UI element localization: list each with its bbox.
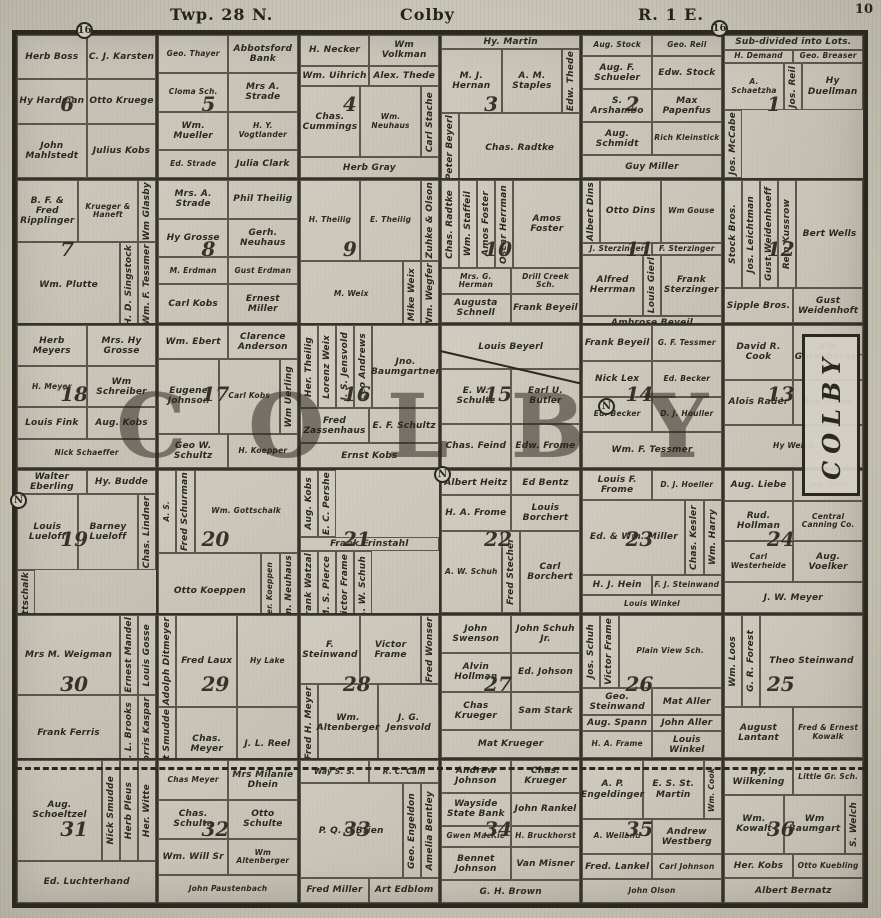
parcel-owner-label: A. P. Engeldinger [581, 779, 644, 799]
parcel-owner-label: Ed. Strade [170, 160, 216, 168]
parcel-owner-label: H. A. Frame [592, 740, 643, 748]
parcel: Nick Lex [582, 361, 652, 397]
parcel: Fred. Lankel [582, 854, 652, 879]
parcel: Nick Smudde [102, 760, 120, 861]
parcel-owner-label: Wm. Harry [708, 509, 718, 565]
parcel: Wm. Loos [724, 615, 742, 707]
parcel-owner-label: Wm. Kowalt [726, 814, 783, 834]
parcel-owner-label: Cloma Sch. [169, 88, 218, 96]
section-23: Louis F. FromeD. J. HoellerEd. & Wm. Mil… [581, 469, 722, 614]
parcel: Carl Johnson [652, 854, 722, 879]
parcel-group: Hy. WilkeningLittle Gr. Sch.Wm. KowaltWm… [724, 760, 863, 903]
parcel: Max Papenfus [652, 89, 722, 122]
parcel-owner-label: Frank Beyeil [513, 303, 578, 313]
parcel: Wayside State Bank [441, 793, 511, 826]
parcel: Fred Miller [300, 878, 370, 903]
parcel-owner-label: Aug. Spann [587, 718, 647, 728]
section-22: Albert HeitzEd BentzH. A. FromeLouis Bor… [440, 469, 581, 614]
parcel-owner-label: Fred H. Meyer [304, 686, 314, 759]
parcel: Oscar Herrman [495, 180, 513, 268]
parcel: Ed. Luchterhand [17, 861, 156, 903]
parcel-owner-label: Frank Sterzinger [663, 275, 720, 295]
parcel-owner-label: G. H. Brown [479, 887, 541, 897]
section-16: Her. TheiligLorenz WeixJ. S. JensvoldLeo… [299, 324, 440, 469]
parcel-group: Mrs. A. StradePhil TheiligHy GrosseGerh.… [158, 180, 297, 323]
parcel-owner-label: Herb Boss [25, 52, 78, 62]
parcel: H. Theilig [300, 180, 361, 261]
parcel: Julia Clark [228, 150, 298, 178]
parcel: Hy. Budde [87, 470, 157, 494]
parcel-owner-label: Ernst Kobs [341, 451, 397, 461]
parcel-owner-label: Aug. F. Schueler [584, 63, 650, 83]
parcel-owner-label: Otto Kruege [89, 96, 153, 106]
parcel: Ambrose Beyeil [582, 316, 721, 324]
highway-16-marker-icon: 16 [711, 20, 728, 37]
section-20: A. S.Fred SchurmanWm. GottschalkOtto Koe… [157, 469, 298, 614]
parcel: Louis Gosse [138, 615, 156, 695]
parcel-owner-label: Gust Erdman [234, 267, 291, 275]
parcel-owner-label: Clarence Anderson [230, 332, 296, 352]
parcel: Her. Witte [138, 760, 156, 861]
parcel-owner-label: Mrs. Hy Grosse [89, 336, 155, 356]
parcel-owner-label: Geo. Breaser [800, 52, 857, 60]
parcel: Hy Hardman [17, 79, 87, 123]
parcel: Alex. Thede [369, 66, 439, 87]
parcel: Louis Winkel [582, 595, 721, 613]
parcel: Chas. Radtke [459, 113, 580, 179]
parcel-group: Albert DinsOtto DinsWm GouseJ. Sterzinge… [582, 180, 721, 323]
parcel-owner-label: Augusta Schnell [443, 298, 509, 318]
parcel: Fred & Ernest Kowalk [793, 707, 863, 758]
parcel: John Aller [652, 715, 722, 732]
parcel: Zuhke & Olson [421, 180, 439, 261]
parcel-owner-label: H. A. Frome [445, 508, 506, 518]
parcel: John Olson [582, 879, 721, 902]
parcel: Augusta Schnell [441, 294, 511, 323]
colby-city-block: COLBY [802, 334, 860, 496]
parcel-group: Aug. StockGeo. ReilAug. F. SchuelerEdw. … [582, 35, 721, 178]
section-6: Herb BossC. J. KarstenHy HardmanOtto Kru… [16, 34, 157, 179]
parcel-owner-label: G. R. Forest [746, 630, 756, 692]
parcel: Frank Watzal [300, 551, 318, 614]
parcel-owner-label: Her. Witte [142, 784, 152, 837]
station-marker-icon: N [598, 398, 615, 415]
parcel-owner-label: Chas Meyer [168, 776, 219, 784]
parcel-owner-label: John Rankel [515, 804, 577, 814]
parcel: Aug. Kobs [300, 470, 318, 537]
parcel: Wm Baumgart [784, 795, 845, 854]
parcel: Herb Meyers [17, 325, 87, 366]
parcel: Wm. Ebert [158, 325, 228, 359]
parcel: Wm. F. Tessmer [138, 242, 156, 324]
parcel-owner-label: Sub-divided into Lots. [735, 37, 851, 47]
parcel-owner-label: Wm. Altenberger [317, 713, 380, 733]
parcel: Hy Duellman [802, 63, 863, 110]
parcel: John Mahlstedt [17, 124, 87, 178]
parcel: Louis Beyerl [441, 325, 580, 369]
parcel: Chas Meyer [158, 760, 228, 800]
parcel: Ed. & Wm. Miller [582, 500, 685, 575]
parcel: Geo. Engeldon [403, 783, 421, 877]
parcel: H. Demand [724, 50, 794, 63]
parcel-owner-label: Adolph Ditmeyer [162, 617, 172, 705]
parcel: Victor Frame [336, 551, 354, 614]
section-30: Mrs M. WeigmanErnest MandelLouis GosseFr… [16, 614, 157, 759]
parcel-owner-label: Drill Creek Sch. [513, 273, 579, 290]
parcel: Phil Theilig [228, 180, 298, 219]
parcel-group: Her. TheiligLorenz WeixJ. S. JensvoldLeo… [300, 325, 439, 468]
parcel: Hy. Martin [441, 35, 580, 49]
parcel-owner-label: Frank Ferris [37, 728, 99, 738]
parcel-owner-label: F. J. Steinwand [654, 581, 719, 589]
parcel-owner-label: Chas. Kesler [689, 505, 699, 570]
county-dashed-line [16, 767, 864, 770]
parcel-owner-label: Edw. Frome [515, 441, 575, 451]
parcel-owner-label: Geo W. Schultz [160, 441, 226, 461]
section-32: Chas MeyerMrs Milanie DheinChas. Schulte… [157, 759, 298, 904]
parcel-owner-label: Nick Schaeffer [54, 449, 118, 457]
parcel: F. Sterzinger [652, 243, 722, 255]
section-25: Wm. LoosG. R. ForestTheo SteinwandAugust… [723, 614, 864, 759]
section-7: B. F. & Fred RipplingerKrueger & HaneftW… [16, 179, 157, 324]
parcel-owner-label: Albert Bernatz [755, 886, 832, 896]
parcel-owner-label: David R. Cook [726, 342, 792, 362]
parcel: Wm. Wegfer [421, 261, 439, 324]
parcel-owner-label: Mrs. A. Strade [160, 189, 226, 209]
parcel-owner-label: Rud. Hollman [726, 511, 792, 531]
parcel: Amelia Bentley [421, 783, 439, 877]
parcel-owner-label: Otto Koeppen [174, 586, 246, 596]
parcel-owner-label: H. Necker [309, 45, 360, 55]
parcel: Carl Kobs [219, 359, 280, 434]
parcel-owner-label: Mat Krueger [478, 739, 544, 749]
parcel-owner-label: Louis Lueloff [19, 522, 76, 542]
parcel-owner-label: Her. Koeppen [266, 562, 274, 614]
section-19: Walter EberlingHy. BuddeLouis LueloffBar… [16, 469, 157, 614]
parcel: E. C. Pershe [318, 470, 336, 537]
parcel-owner-label: Peter Beyerl [445, 115, 455, 179]
parcel-owner-label: Zuhke & Olson [425, 182, 435, 259]
section-12: Stock Bros.Jos. LeichtmanGust Weidenhoef… [723, 179, 864, 324]
parcel: Aug. Schoeltzel [17, 760, 102, 861]
section-29: Adolph DitmeyerFred LauxHy LakeRobt Smud… [157, 614, 298, 759]
parcel: Frank Beyeil [582, 325, 652, 361]
parcel: G. R. Forest [742, 615, 760, 707]
section-27: John SwensonJohn Schuh Jr.Alvin HollmanE… [440, 614, 581, 759]
parcel: Fred Stecher [502, 531, 520, 613]
parcel-owner-label: Little Gr. Sch. [798, 773, 858, 781]
parcel-owner-label: J. W. Meyer [764, 593, 823, 603]
parcel-owner-label: Wm Baumgart [786, 814, 843, 834]
parcel: John Rankel [511, 793, 581, 826]
parcel: Louis Winkel [652, 731, 722, 758]
parcel: Central Canning Co. [793, 501, 863, 542]
parcel: Wm. Plutte [17, 242, 120, 324]
parcel: H. A. Frome [441, 495, 511, 530]
parcel-owner-label: F. Steinwand [302, 640, 359, 660]
township-label: Twp. 28 N. [170, 5, 273, 24]
parcel: Otto Kuebling [793, 854, 863, 879]
parcel-owner-label: Wm. Gottschalk [21, 572, 31, 614]
parcel: Andrew Westberg [652, 819, 722, 854]
parcel-owner-label: Wm. Neuhaus [362, 113, 419, 130]
parcel: Victor Frame [360, 615, 421, 684]
parcel-owner-label: Ernest Miller [230, 294, 296, 314]
parcel: Fred Schurman [176, 470, 194, 553]
parcel: A. Weiland [582, 819, 652, 854]
section-15: Louis BeyerlE. W. SchultzEarl U. ButlerC… [440, 324, 581, 469]
parcel-owner-label: Guy Miller [625, 162, 679, 172]
parcel-owner-label: A. M. Staples [504, 71, 561, 91]
parcel-owner-label: John Olson [628, 887, 675, 895]
parcel-owner-label: Louis Beyerl [478, 342, 543, 352]
parcel: Herb Pleus [120, 760, 138, 861]
parcel: A. S. [158, 470, 176, 553]
section-9: H. TheiligE. TheiligZuhke & OlsonM. Weix… [299, 179, 440, 324]
parcel-group: Louis BeyerlE. W. SchultzEarl U. ButlerC… [441, 325, 580, 468]
parcel: H. J. Hein [582, 575, 652, 595]
parcel: Fred Wonser [421, 615, 439, 684]
parcel: H. Koepper [228, 434, 298, 468]
parcel-owner-label: E. S. St. Martin [645, 779, 702, 799]
parcel-owner-label: J. G. Jensvold [380, 713, 437, 733]
parcel: Peter Beyerl [441, 113, 459, 179]
parcel-owner-label: Abbotsford Bank [230, 44, 296, 64]
parcel-owner-label: Wm. F. Tessmer [142, 244, 152, 324]
parcel: Jos. Reil [784, 63, 802, 110]
parcel: Wm Volkman [369, 35, 439, 66]
parcel: Edw. Frome [511, 424, 581, 468]
parcel: H. Y. Vogtlander [228, 112, 298, 150]
section-10: Chas. RadtkeWm. StaffeilAmos FosterOscar… [440, 179, 581, 324]
parcel: Cloma Sch. [158, 73, 228, 111]
section-21: Aug. KobsE. C. PersheFrank FrinstahlFran… [299, 469, 440, 614]
parcel: Clarence Anderson [228, 325, 298, 359]
parcel-group: Way S. S.R. C. CainP. Q. O'BrienGeo. Eng… [300, 760, 439, 903]
parcel-owner-label: G. F. Tessmer [658, 339, 716, 347]
parcel: Chas. Schulte [158, 800, 228, 840]
parcel: Jos. Schuh [582, 615, 600, 688]
parcel-owner-label: Wm Gouse [668, 207, 715, 215]
parcel: Mike Weix [403, 261, 421, 324]
parcel-owner-label: Wm. Loos [728, 636, 738, 687]
parcel-owner-label: Mrs M. Weigman [25, 650, 112, 660]
parcel-owner-label: Ed Bentz [522, 478, 568, 488]
parcel: Geo. Reil [652, 35, 722, 56]
parcel: Walter Eberling [17, 470, 87, 494]
parcel: Gust Weidenhoft [793, 288, 863, 323]
parcel-owner-label: Plain View Sch. [636, 647, 704, 655]
section-31: Aug. SchoeltzelNick SmuddeHerb PleusHer.… [16, 759, 157, 904]
parcel-owner-label: E. C. Pershe [322, 472, 332, 535]
parcel-owner-label: Otto Schulte [230, 809, 296, 829]
parcel-owner-label: Fred Stecher [506, 538, 516, 605]
parcel: A. W. Schuh [354, 551, 372, 614]
parcel-owner-label: John Schuh Jr. [513, 624, 579, 644]
parcel: August Lantant [724, 707, 794, 758]
parcel-owner-label: Louis Winkel [624, 600, 680, 608]
parcel-owner-label: Louis Gierl [647, 257, 657, 313]
parcel: Mrs Milanie Dhein [228, 760, 298, 800]
parcel-owner-label: Jos. Schuh [586, 624, 596, 678]
parcel-owner-label: Ed. Becker [663, 375, 710, 383]
parcel-owner-label: Frank Beyeil [585, 338, 650, 348]
parcel-owner-label: Fred Miller [306, 885, 362, 895]
parcel: G. H. Brown [441, 880, 580, 903]
parcel: Wm. Neuhaus [360, 86, 421, 157]
parcel-owner-label: Frank Watzal [304, 553, 314, 614]
section-36: Hy. WilkeningLittle Gr. Sch.Wm. KowaltWm… [723, 759, 864, 904]
parcel: Chas. Kesler [685, 500, 703, 575]
parcel-owner-label: Hy Hardman [19, 96, 84, 106]
section-3: Hy. MartinM. J. HernanA. M. StaplesEdw. … [440, 34, 581, 179]
parcel-group: Louis F. FromeD. J. HoellerEd. & Wm. Mil… [582, 470, 721, 613]
parcel-owner-label: Aug. Kobs [304, 477, 314, 530]
parcel-owner-label: E. F. Schultz [373, 421, 436, 431]
parcel: Van Misner [511, 847, 581, 880]
parcel-owner-label: Bennet Johnson [443, 854, 509, 874]
parcel: A. L. Brooks [120, 695, 138, 759]
section-4: H. NeckerWm VolkmanWm. UihrichAlex. Thed… [299, 34, 440, 179]
parcel: Her. Theilig [300, 325, 318, 408]
section-8: Mrs. A. StradePhil TheiligHy GrosseGerh.… [157, 179, 298, 324]
parcel-owner-label: A. Weiland [594, 832, 641, 840]
parcel: M. S. Pierce [318, 551, 336, 614]
parcel-owner-label: S. Arshambo [584, 96, 650, 116]
parcel: Chas. Feind [441, 424, 511, 468]
parcel: Barney Lueloff [78, 494, 139, 570]
parcel-owner-label: Albert Dins [586, 182, 596, 241]
parcel-owner-label: Wm Volkman [371, 40, 437, 60]
parcel-owner-label: Carl Westerheide [726, 553, 792, 570]
parcel: Aug. Stock [582, 35, 652, 56]
parcel: Wm. Harry [704, 500, 722, 575]
parcel: Jos. Leichtman [742, 180, 760, 288]
parcel-owner-label: Her. Theilig [304, 337, 314, 397]
parcel-owner-label: H. Theilig [309, 216, 351, 224]
parcel: Bert Wells [796, 180, 863, 288]
parcel: Rud. Hollman [724, 501, 794, 542]
parcel: B. F. & Fred Ripplinger [17, 180, 78, 242]
parcel: Alois Rader [724, 380, 794, 425]
parcel-owner-label: Carl Borchert [522, 562, 579, 582]
parcel-group: A. S.Fred SchurmanWm. GottschalkOtto Koe… [158, 470, 297, 613]
parcel-owner-label: Van Misner [516, 859, 574, 869]
parcel-owner-label: Edw. Thede [566, 51, 576, 111]
parcel: Wm Gouse [661, 180, 722, 243]
parcel: H. Meyer [17, 366, 87, 407]
parcel: Wm. Neuhaus [280, 553, 298, 614]
parcel: R. C. Cain [369, 760, 439, 783]
parcel: Adolph Ditmeyer [158, 615, 176, 707]
parcel-owner-label: John Paustenbach [189, 885, 268, 893]
parcel-owner-label: Aug. Voelker [795, 552, 861, 572]
page-number: 10 [855, 2, 873, 17]
parcel-owner-label: Alvin Hollman [443, 662, 509, 682]
parcel-owner-label: Wm. Wegfer [425, 263, 435, 324]
parcel-owner-label: Carl Kobs [168, 299, 218, 309]
parcel: Earl U. Butler [511, 369, 581, 423]
parcel-owner-label: Aug. Kobs [95, 418, 148, 428]
parcel: Mrs. A. Strade [158, 180, 228, 219]
parcel: Nick Schaeffer [17, 439, 156, 468]
parcel: Otto Schulte [228, 800, 298, 840]
parcel-owner-label: John Aller [661, 718, 712, 728]
parcel-owner-label: Gust Weidenhoeff [764, 187, 774, 281]
parcel: Aug. F. Schueler [582, 56, 652, 89]
parcel-owner-label: Wm. Will Sr [163, 852, 224, 862]
parcel: Aug. Spann [582, 715, 652, 732]
parcel-owner-label: Louis Borchert [513, 503, 579, 523]
parcel: P. Q. O'Brien [300, 783, 403, 877]
parcel-owner-label: Wm. Uihrich [302, 71, 366, 81]
parcel-owner-label: Wm Glasby [142, 182, 152, 240]
parcel-owner-label: Hy Grosse [167, 233, 220, 243]
parcel-owner-label: Fred. Lankel [585, 862, 649, 872]
parcel-owner-label: Rein Kussrow [782, 199, 792, 269]
parcel-owner-label: J. L. Reel [244, 739, 290, 749]
parcel-owner-label: Victor Frame [340, 554, 350, 614]
parcel: David R. Cook [724, 325, 794, 380]
highway-16-marker-icon: 16 [76, 22, 93, 39]
parcel: Wm. Staffeil [459, 180, 477, 268]
parcel-group: F. SteinwandVictor FrameFred WonserFred … [300, 615, 439, 758]
parcel-owner-label: C. J. Karsten [89, 52, 154, 62]
parcel-owner-label: Ed. Luchterhand [44, 877, 130, 887]
parcel-owner-label: Ed. Johson [518, 667, 573, 677]
section-28: F. SteinwandVictor FrameFred WonserFred … [299, 614, 440, 759]
parcel-owner-label: Herb Gray [343, 163, 396, 173]
parcel: Hy. Wilkening [724, 760, 794, 795]
parcel: Albert Bernatz [724, 878, 863, 903]
parcel-owner-label: Louis Fink [25, 418, 79, 428]
parcel-owner-label: D. J. Hoeller [660, 481, 713, 489]
parcel-group: Herb MeyersMrs. Hy GrosseH. MeyerWm Schr… [17, 325, 156, 468]
parcel-owner-label: Phil Theilig [233, 194, 292, 204]
parcel: Wm Altenberger [228, 839, 298, 875]
parcel-owner-label: August Lantant [726, 723, 792, 743]
parcel: Chas. Lindner [138, 494, 156, 570]
parcel-owner-label: A. Schaetzha [726, 78, 783, 95]
parcel-owner-label: P. Q. O'Brien [319, 826, 384, 836]
parcel-owner-label: Alfred Herrman [584, 275, 641, 295]
parcel: Otto Kruege [87, 79, 157, 123]
parcel-group: Andrew JohnsonChas. KruegerWayside State… [441, 760, 580, 903]
parcel-owner-label: Gerh. Neuhaus [230, 228, 296, 248]
parcel: Geo. Thayer [158, 35, 228, 73]
parcel-owner-label: Wm Altenberger [230, 849, 296, 866]
parcel: Wm. Mueller [158, 112, 228, 150]
parcel: F. Steinwand [300, 615, 361, 684]
parcel: Chas. Radtke [441, 180, 459, 268]
parcel-group: Herb BossC. J. KarstenHy HardmanOtto Kru… [17, 35, 156, 178]
parcel: A. Schaetzha [724, 63, 785, 110]
parcel: Carl Westerheide [724, 541, 794, 582]
parcel-owner-label: Gust Weidenhoft [795, 296, 861, 316]
parcel: Aug. Liebe [724, 470, 794, 501]
parcel-owner-label: Hy. Wilkening [726, 767, 792, 787]
parcel-group: H. NeckerWm VolkmanWm. UihrichAlex. Thed… [300, 35, 439, 178]
parcel: Aug. Voelker [793, 541, 863, 582]
parcel: Frank Sterzinger [661, 255, 722, 315]
parcel-owner-label: Nick Smudde [106, 776, 116, 845]
parcel-owner-label: Chas. Radtke [445, 190, 455, 259]
parcel-owner-label: Jos. McCabe [728, 112, 738, 175]
parcel: H. D. Singstock [120, 242, 138, 324]
parcel: Abbotsford Bank [228, 35, 298, 73]
parcel-owner-label: Earl U. Butler [513, 386, 579, 406]
parcel: E. Theilig [360, 180, 421, 261]
